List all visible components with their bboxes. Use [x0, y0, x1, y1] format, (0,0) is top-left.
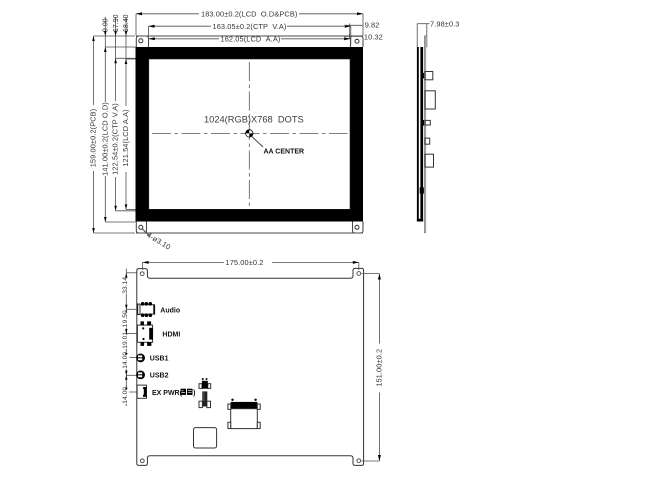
svg-text:9.82: 9.82	[365, 20, 380, 29]
svg-text:159.00±0.2(PCB): 159.00±0.2(PCB)	[89, 109, 98, 168]
svg-text:183.00±0.2(LCD O.D&PCB): 183.00±0.2(LCD O.D&PCB)	[201, 10, 297, 19]
svg-text:17.90: 17.90	[113, 14, 120, 32]
svg-text:USB2: USB2	[150, 373, 169, 380]
svg-text:10.32: 10.32	[364, 32, 383, 41]
svg-text:AA CENTER: AA CENTER	[264, 148, 305, 155]
svg-text:151.00±0.2: 151.00±0.2	[374, 349, 383, 387]
svg-text:33.14: 33.14	[122, 277, 129, 294]
svg-text:141.00±0.2(LCD O.D): 141.00±0.2(LCD O.D)	[100, 102, 109, 176]
svg-text:EX PWR(: EX PWR(	[152, 390, 183, 397]
svg-text:14.00: 14.00	[122, 387, 129, 404]
svg-text:18.40: 18.40	[123, 14, 130, 32]
svg-text:USB1: USB1	[150, 356, 169, 363]
svg-text:14.00: 14.00	[122, 352, 129, 369]
svg-text:162.05(LCD A.A): 162.05(LCD A.A)	[221, 35, 281, 44]
svg-text:19.50: 19.50	[122, 310, 129, 327]
svg-text:Audio: Audio	[160, 307, 180, 314]
svg-text:1024(RGB)X768 DOTS: 1024(RGB)X768 DOTS	[204, 115, 304, 125]
svg-text:19.01: 19.01	[122, 332, 129, 349]
svg-text:121.54(LCD A.A): 121.54(LCD A.A)	[121, 109, 130, 166]
svg-text:122.54±0.2(CTP V.A): 122.54±0.2(CTP V.A)	[111, 103, 120, 175]
svg-text:): )	[193, 390, 195, 397]
svg-text:163.05±0.2(CTP V.A): 163.05±0.2(CTP V.A)	[213, 22, 287, 31]
svg-text:9.00: 9.00	[102, 18, 109, 32]
svg-text:7.98±0.3: 7.98±0.3	[430, 20, 460, 29]
svg-text:HDMI: HDMI	[162, 332, 180, 339]
svg-text:175.00±0.2: 175.00±0.2	[226, 258, 264, 267]
